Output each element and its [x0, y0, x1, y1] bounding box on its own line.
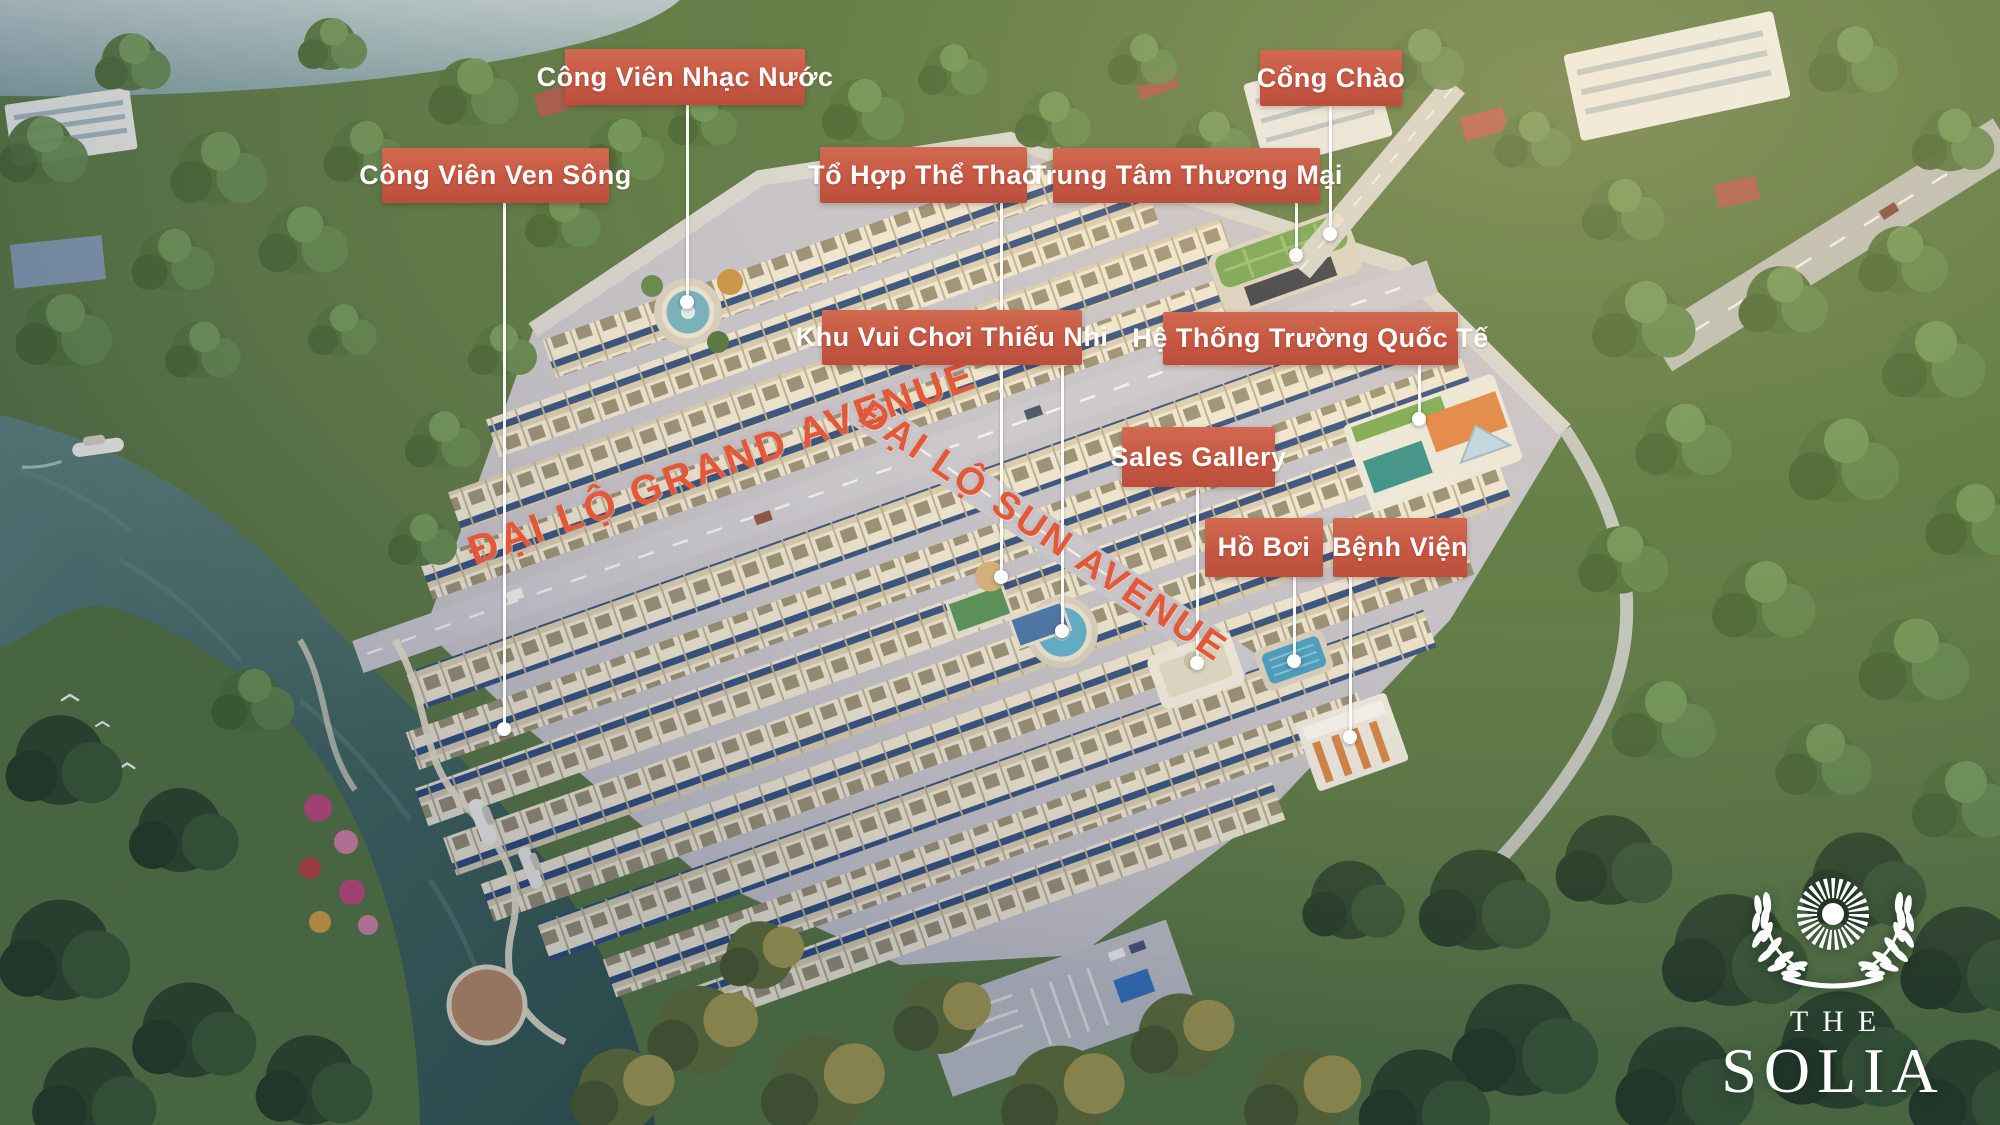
callout-ho-boi: Hồ Bơi — [1205, 518, 1323, 577]
leader-dot-cong-vien-ven-song — [497, 722, 511, 736]
laurel-right — [1857, 892, 1916, 979]
logo-name-text: SOLIA — [1708, 1039, 1958, 1103]
callout-cong-vien-ven-song: Công Viên Ven Sông — [382, 148, 609, 203]
leader-line-trung-tam-thuong-mai — [1295, 203, 1298, 253]
leader-line-cong-vien-ven-song — [503, 203, 506, 727]
callout-benh-vien: Bệnh Viện — [1333, 518, 1467, 577]
leader-line-ho-boi — [1293, 577, 1296, 659]
solia-logo: THE SOLIA — [1708, 868, 1958, 1103]
leader-dot-khu-vui-choi-thieu-nhi — [1055, 624, 1069, 638]
callout-he-thong-truong-quoc-te: Hệ Thống Trường Quốc Tế — [1163, 312, 1458, 365]
leader-line-khu-vui-choi-thieu-nhi — [1061, 365, 1064, 629]
masterplan-screenshot: Công Viên Nhạc Nước Cổng Chào Công Viên … — [0, 0, 2000, 1125]
leader-dot-ho-boi — [1287, 654, 1301, 668]
solia-emblem-icon — [1733, 868, 1933, 998]
leader-dot-cong-chao — [1323, 227, 1337, 241]
callout-to-hop-the-thao: Tổ Hợp Thể Thao — [820, 147, 1027, 203]
callout-trung-tam-thuong-mai: Trung Tâm Thương Mại — [1053, 148, 1320, 203]
callout-khu-vui-choi-thieu-nhi: Khu Vui Chơi Thiếu Nhi — [822, 310, 1082, 365]
callout-cong-vien-nhac-nuoc: Công Viên Nhạc Nước — [565, 49, 805, 105]
leader-line-he-thong-truong-quoc-te — [1418, 365, 1421, 417]
leader-dot-benh-vien — [1343, 730, 1357, 744]
leader-dot-trung-tam-thuong-mai — [1289, 248, 1303, 262]
leader-dot-he-thong-truong-quoc-te — [1412, 412, 1426, 426]
leader-dot-to-hop-the-thao — [994, 570, 1008, 584]
leader-line-benh-vien — [1349, 577, 1352, 735]
logo-the-text: THE — [1708, 1005, 1958, 1039]
leader-dot-cong-vien-nhac-nuoc — [680, 295, 694, 309]
callout-cong-chao: Cổng Chào — [1260, 50, 1402, 106]
leader-line-cong-vien-nhac-nuoc — [686, 105, 689, 300]
laurel-left — [1750, 892, 1809, 979]
callout-sales-gallery: Sales Gallery — [1122, 427, 1275, 487]
